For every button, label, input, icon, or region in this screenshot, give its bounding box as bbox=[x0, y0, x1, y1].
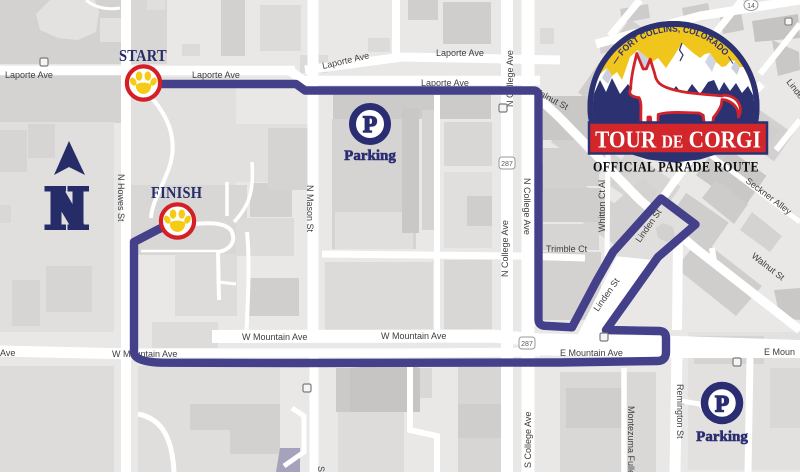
svg-text:FINISH: FINISH bbox=[151, 184, 202, 202]
svg-text:N College Ave: N College Ave bbox=[500, 220, 510, 277]
svg-text:Parking: Parking bbox=[696, 429, 748, 445]
svg-text:S: S bbox=[316, 466, 326, 472]
svg-text:S College Ave: S College Ave bbox=[523, 412, 533, 468]
svg-text:E Mountain Ave: E Mountain Ave bbox=[560, 348, 623, 358]
svg-text:287: 287 bbox=[521, 341, 533, 348]
svg-text:N College Ave: N College Ave bbox=[505, 50, 515, 107]
svg-text:Parking: Parking bbox=[344, 148, 396, 164]
svg-text:Laporte Ave: Laporte Ave bbox=[436, 48, 484, 58]
svg-text:START: START bbox=[119, 47, 167, 65]
svg-text:OFFICIAL PARADE ROUTE: OFFICIAL PARADE ROUTE bbox=[593, 158, 759, 175]
svg-text:Remington St: Remington St bbox=[675, 384, 685, 439]
svg-text:P: P bbox=[715, 392, 729, 417]
svg-text:Ave: Ave bbox=[0, 348, 15, 358]
svg-text:N Howes St: N Howes St bbox=[116, 174, 126, 222]
svg-text:Trimble Ct: Trimble Ct bbox=[546, 244, 588, 254]
svg-text:E Moun: E Moun bbox=[764, 347, 795, 357]
svg-text:Whitton Ct Al: Whitton Ct Al bbox=[597, 180, 607, 232]
svg-text:W Mountain Ave: W Mountain Ave bbox=[242, 332, 307, 342]
svg-text:Montezuma Fulle: Montezuma Fulle bbox=[626, 406, 636, 472]
svg-text:W Mountain Ave: W Mountain Ave bbox=[381, 331, 446, 341]
svg-text:14: 14 bbox=[747, 3, 755, 10]
svg-text:N Mason St: N Mason St bbox=[305, 185, 315, 233]
svg-text:N College Ave: N College Ave bbox=[522, 178, 532, 235]
svg-text:Laporte Ave: Laporte Ave bbox=[192, 70, 240, 80]
svg-text:P: P bbox=[363, 112, 377, 137]
svg-text:Laporte Ave: Laporte Ave bbox=[5, 70, 53, 80]
svg-text:287: 287 bbox=[501, 161, 513, 168]
